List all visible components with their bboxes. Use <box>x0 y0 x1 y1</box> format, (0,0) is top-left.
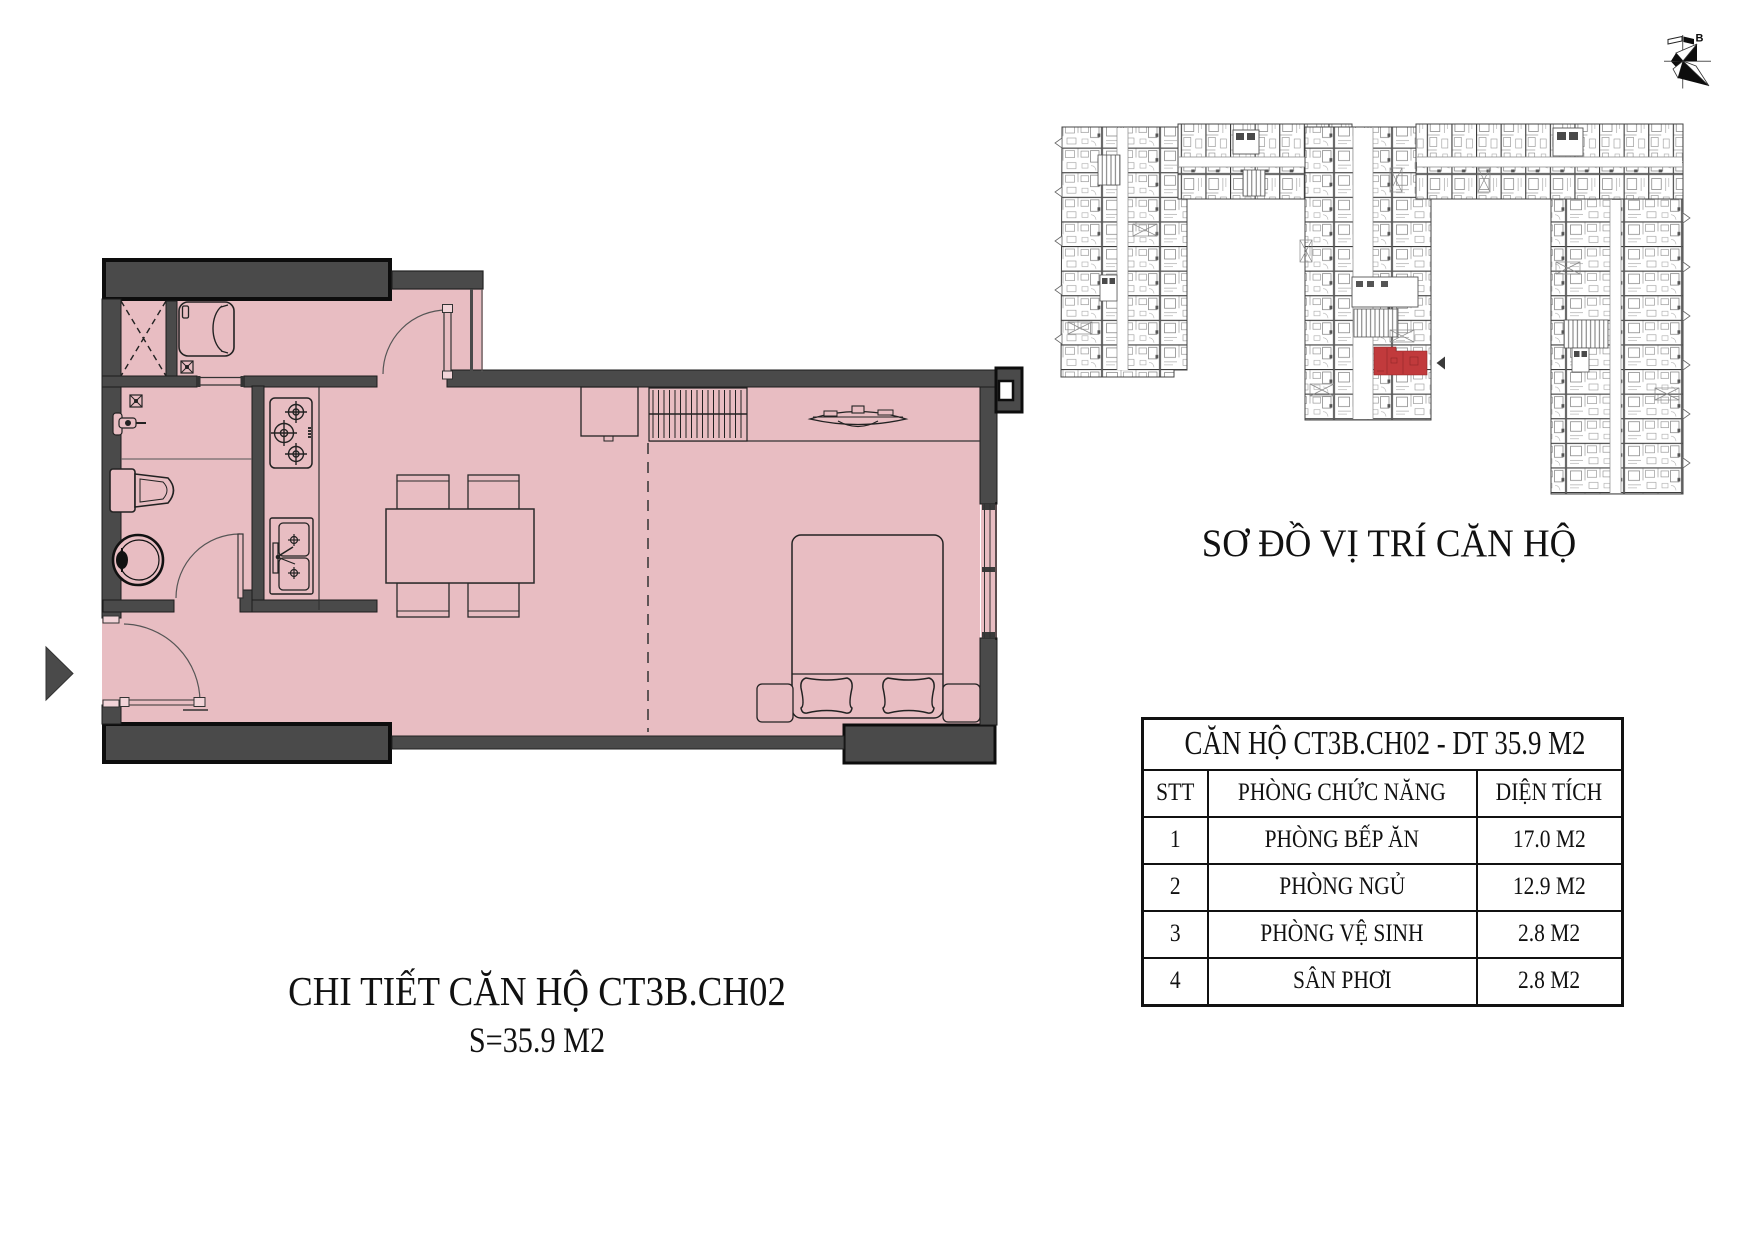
svg-text:B: B <box>1696 33 1704 45</box>
